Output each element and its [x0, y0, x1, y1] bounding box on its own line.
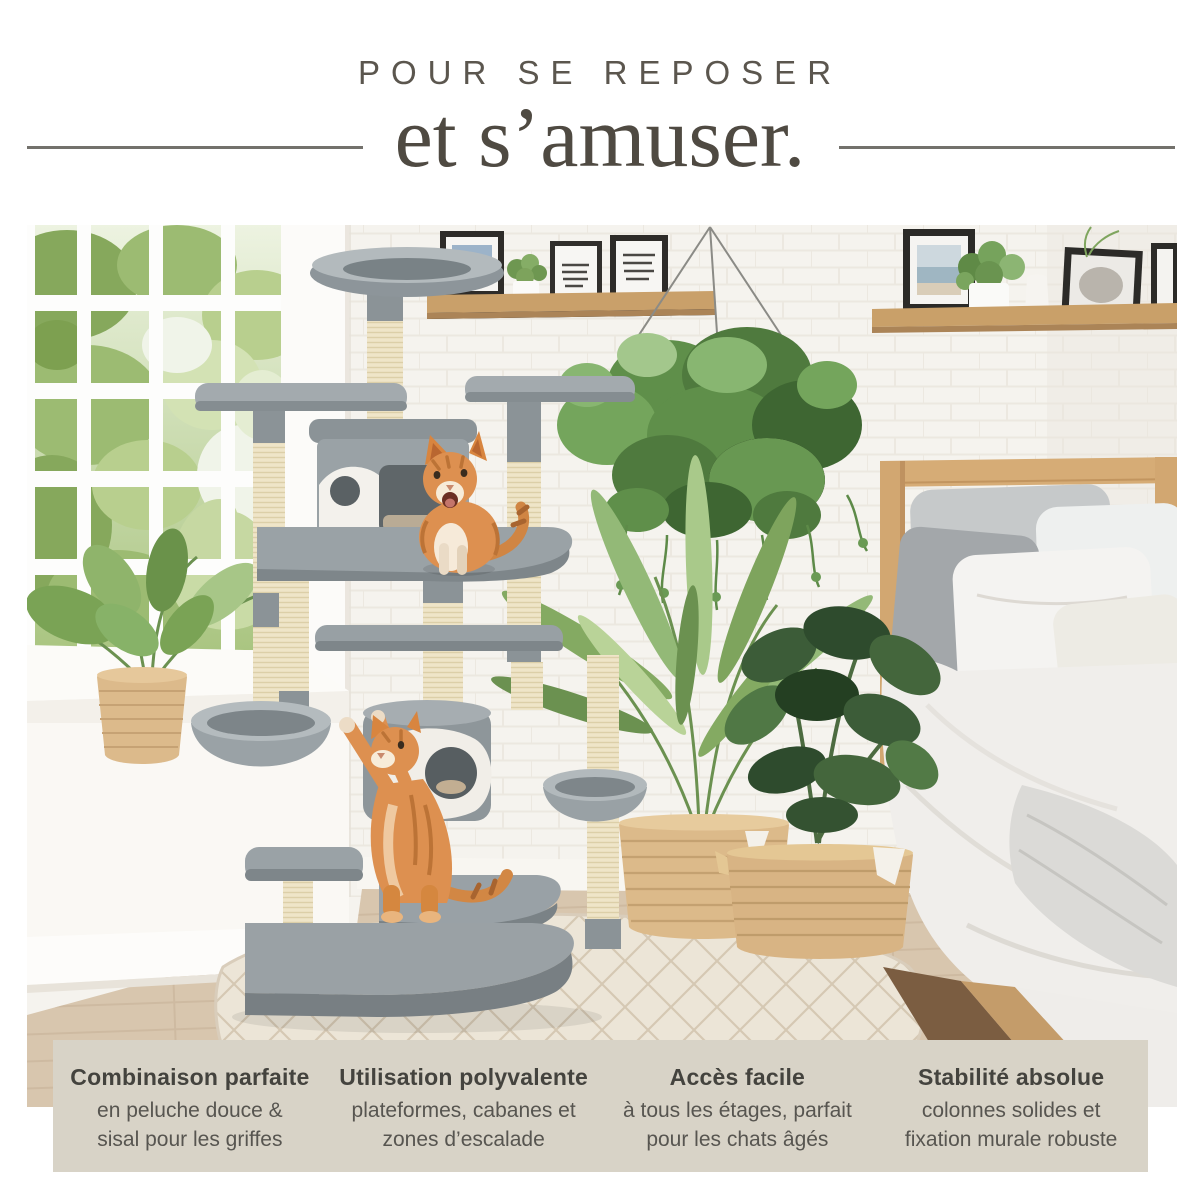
- picture-frame-print1: [550, 241, 602, 299]
- feature-stabilite: Stabilité absolue colonnes solides etfix…: [874, 1040, 1148, 1172]
- feature-utilisation: Utilisation polyvalente plateformes, cab…: [327, 1040, 601, 1172]
- feature-panel: Combinaison parfaite en peluche douce &s…: [53, 1040, 1148, 1172]
- picture-frame-print2: [610, 235, 668, 299]
- base-plate: [232, 923, 602, 1033]
- decorative-rule-right: [839, 146, 1175, 149]
- feature-text: plateformes, cabanes etzones d’escalade: [327, 1096, 601, 1154]
- feature-title: Stabilité absolue: [874, 1064, 1148, 1091]
- feature-text: à tous les étages, parfaitpour les chats…: [601, 1096, 875, 1154]
- hero-photo: [27, 225, 1177, 1107]
- feature-title: Combinaison parfaite: [53, 1064, 327, 1091]
- feature-combinaison: Combinaison parfaite en peluche douce &s…: [53, 1040, 327, 1172]
- feature-text: colonnes solides etfixation murale robus…: [874, 1096, 1148, 1154]
- decorative-rule-left: [27, 146, 363, 149]
- woven-pot: [97, 671, 187, 764]
- feature-title: Utilisation polyvalente: [327, 1064, 601, 1091]
- page-title: et s’amuser.: [0, 86, 1200, 188]
- feature-text: en peluche douce &sisal pour les griffes: [53, 1096, 327, 1154]
- feature-title: Accès facile: [601, 1064, 875, 1091]
- top-perch: [310, 247, 504, 297]
- picture-frame-partial: [1151, 243, 1177, 311]
- feature-acces: Accès facile à tous les étages, parfaitp…: [601, 1040, 875, 1172]
- basket-fig: [715, 844, 913, 959]
- vase: [1025, 275, 1049, 312]
